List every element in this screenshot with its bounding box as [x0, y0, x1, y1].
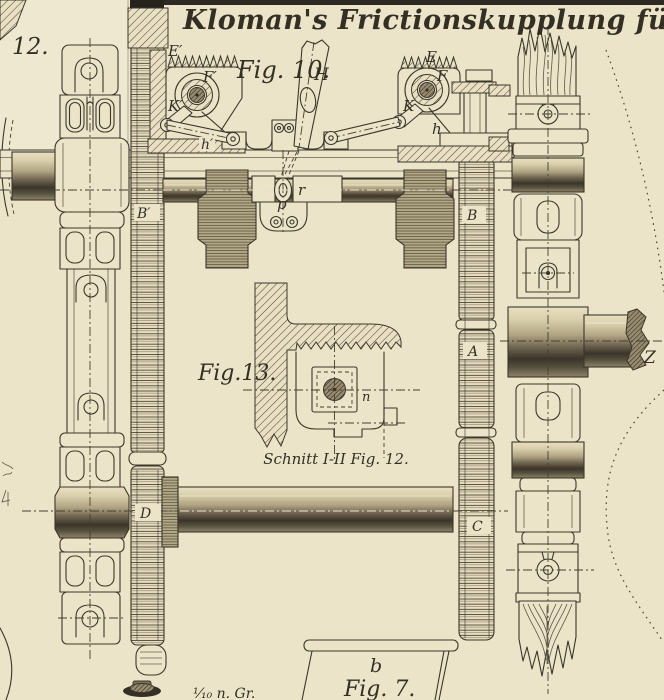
lower-shaft	[178, 487, 453, 532]
shaft-collar-left	[252, 176, 275, 202]
rack-joint	[129, 452, 166, 465]
label-K-prime: K′	[167, 97, 183, 115]
clutch-support-section	[128, 8, 168, 48]
fig13-caption: Schnitt I-II Fig. 12.	[263, 450, 408, 468]
fig7-label: Fig. 7.	[343, 677, 415, 700]
beam-stub-section	[489, 137, 509, 151]
rack-joint	[456, 428, 496, 437]
bearing-block	[55, 138, 129, 212]
label-E: E	[425, 48, 437, 66]
beam-stub-section	[489, 85, 510, 96]
label-A: A	[466, 344, 478, 360]
bracket-cap	[466, 70, 492, 81]
link-pivot	[325, 132, 338, 145]
label-h-prime: h′	[201, 137, 214, 153]
label-F: F	[436, 67, 448, 85]
label-p: p	[277, 195, 287, 213]
label-Z: Z	[643, 348, 657, 368]
fig13-label: Fig.13.	[197, 361, 276, 386]
label-F-prime: F′	[202, 68, 217, 86]
scale-note: ¹⁄₁₀ n. Gr.	[193, 686, 255, 700]
label-E-prime: E′	[167, 42, 183, 60]
rack-joint	[456, 320, 496, 329]
right-gear-rack	[456, 160, 496, 640]
bracket-web	[464, 93, 486, 133]
technical-drawing: Kloman's Frictionskupplung für Reversir …	[0, 0, 664, 700]
fig7-part-label: b	[370, 655, 382, 677]
plate-title: Kloman's Frictionskupplung für Reversir	[182, 5, 664, 36]
fig12-label: 12.	[12, 34, 49, 60]
label-r: r	[298, 181, 306, 199]
left-shaft-stub	[12, 152, 57, 200]
label-n: n	[362, 390, 370, 405]
link-pivot	[227, 133, 240, 146]
label-D: D	[139, 506, 151, 522]
bucket-rim	[304, 640, 458, 651]
rack-end-cap	[136, 645, 166, 675]
label-B: B	[466, 208, 477, 224]
engraving-plate: Kloman's Frictionskupplung für Reversir …	[0, 0, 664, 700]
coupling-cylinder	[55, 487, 129, 538]
label-B-prime: B′	[136, 206, 151, 222]
label-C: C	[472, 519, 483, 535]
label-K: K	[402, 97, 415, 115]
label-h: h	[432, 120, 442, 138]
label-H: H	[313, 65, 330, 85]
